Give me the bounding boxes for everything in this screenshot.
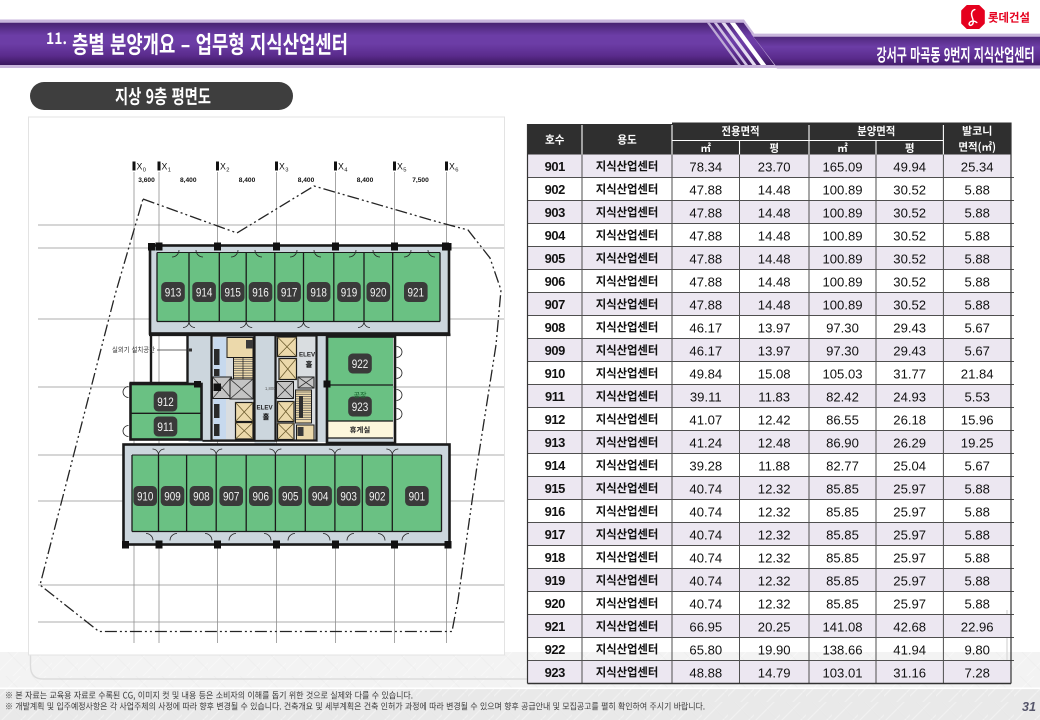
svg-text:919: 919 [341, 285, 358, 299]
svg-text:922: 922 [352, 357, 369, 371]
svg-text:X: X [220, 162, 226, 172]
svg-text:14.48: 14.48 [758, 183, 791, 198]
svg-text:85.85: 85.85 [826, 551, 859, 566]
svg-text:85.85: 85.85 [826, 597, 859, 612]
svg-text:907: 907 [223, 489, 240, 503]
svg-text:30.52: 30.52 [893, 298, 926, 313]
svg-text:912: 912 [545, 412, 566, 427]
svg-text:5.88: 5.88 [964, 482, 989, 497]
svg-text:903: 903 [340, 489, 357, 503]
svg-text:42.68: 42.68 [893, 620, 926, 635]
svg-text:47.88: 47.88 [689, 229, 722, 244]
svg-text:100.89: 100.89 [822, 229, 862, 244]
svg-text:0: 0 [143, 167, 146, 173]
svg-text:15.08: 15.08 [758, 367, 791, 382]
svg-text:X: X [449, 162, 455, 172]
svg-text:13.97: 13.97 [758, 344, 791, 359]
svg-text:920: 920 [545, 596, 566, 611]
svg-text:5.88: 5.88 [964, 528, 989, 543]
svg-text:14.48: 14.48 [758, 275, 791, 290]
svg-text:100.89: 100.89 [822, 252, 862, 267]
svg-text:921: 921 [545, 619, 566, 634]
svg-text:911: 911 [157, 420, 174, 434]
svg-text:916: 916 [545, 504, 566, 519]
svg-text:39.28: 39.28 [689, 459, 722, 474]
svg-text:8,400: 8,400 [239, 177, 256, 184]
svg-text:47.88: 47.88 [689, 275, 722, 290]
svg-text:5.88: 5.88 [964, 298, 989, 313]
svg-text:902: 902 [369, 489, 386, 503]
svg-text:85.85: 85.85 [826, 574, 859, 589]
svg-text:47.88: 47.88 [689, 183, 722, 198]
svg-text:19.90: 19.90 [758, 643, 791, 658]
svg-text:905: 905 [545, 251, 566, 266]
svg-text:97.30: 97.30 [826, 321, 859, 336]
svg-text:5.88: 5.88 [964, 229, 989, 244]
svg-text:49.94: 49.94 [893, 160, 926, 175]
svg-text:913: 913 [545, 435, 566, 450]
svg-text:3: 3 [285, 167, 288, 173]
svg-text:X: X [397, 162, 403, 172]
svg-text:25.97: 25.97 [893, 551, 926, 566]
svg-text:14.48: 14.48 [758, 206, 791, 221]
svg-text:22.96: 22.96 [961, 620, 994, 635]
svg-text:100.89: 100.89 [822, 275, 862, 290]
svg-text:40.74: 40.74 [689, 597, 722, 612]
svg-text:14.48: 14.48 [758, 298, 791, 313]
svg-text:12.32: 12.32 [758, 505, 791, 520]
svg-text:41.07: 41.07 [689, 413, 722, 428]
svg-text:25.97: 25.97 [893, 574, 926, 589]
svg-text:909: 909 [545, 343, 566, 358]
svg-text:5.88: 5.88 [964, 206, 989, 221]
svg-text:20.25: 20.25 [758, 620, 791, 635]
svg-text:912: 912 [157, 395, 174, 409]
svg-text:923: 923 [352, 400, 369, 414]
svg-text:916: 916 [252, 285, 269, 299]
svg-text:24.93: 24.93 [893, 390, 926, 405]
svg-text:15.96: 15.96 [961, 413, 994, 428]
svg-text:5.88: 5.88 [964, 183, 989, 198]
svg-text:85.85: 85.85 [826, 505, 859, 520]
svg-text:41.24: 41.24 [689, 436, 722, 451]
svg-text:46.17: 46.17 [689, 321, 722, 336]
svg-text:40.74: 40.74 [689, 482, 722, 497]
svg-text:29.43: 29.43 [893, 344, 926, 359]
svg-text:910: 910 [545, 366, 566, 381]
svg-text:5.88: 5.88 [964, 275, 989, 290]
svg-text:30.52: 30.52 [893, 252, 926, 267]
svg-text:12.42: 12.42 [758, 413, 791, 428]
svg-text:909: 909 [164, 489, 181, 503]
svg-text:48.88: 48.88 [689, 666, 722, 681]
svg-text:30.52: 30.52 [893, 206, 926, 221]
svg-text:1: 1 [168, 167, 171, 173]
svg-text:85.85: 85.85 [826, 482, 859, 497]
svg-text:5.53: 5.53 [964, 390, 989, 405]
svg-text:914: 914 [545, 458, 567, 473]
svg-text:12.32: 12.32 [758, 528, 791, 543]
svg-text:47.88: 47.88 [689, 298, 722, 313]
svg-text:31.77: 31.77 [893, 367, 926, 382]
svg-text:915: 915 [224, 285, 241, 299]
svg-text:25.97: 25.97 [893, 482, 926, 497]
svg-text:8,400: 8,400 [180, 177, 197, 184]
svg-text:901: 901 [545, 159, 566, 174]
svg-text:66.95: 66.95 [689, 620, 722, 635]
svg-text:103.01: 103.01 [822, 666, 862, 681]
svg-text:901: 901 [409, 489, 426, 503]
svg-text:8,400: 8,400 [298, 177, 315, 184]
svg-text:906: 906 [545, 274, 566, 289]
svg-text:904: 904 [312, 489, 329, 503]
svg-text:5: 5 [403, 167, 406, 173]
svg-text:12.32: 12.32 [758, 551, 791, 566]
svg-text:7,500: 7,500 [412, 177, 429, 184]
svg-text:12.32: 12.32 [758, 597, 791, 612]
svg-text:919: 919 [545, 573, 566, 588]
svg-text:917: 917 [545, 527, 566, 542]
svg-text:12.32: 12.32 [758, 482, 791, 497]
svg-text:910: 910 [137, 489, 154, 503]
svg-text:3,600: 3,600 [138, 177, 155, 184]
svg-text:X: X [338, 162, 344, 172]
svg-text:65.80: 65.80 [689, 643, 722, 658]
svg-text:917: 917 [281, 285, 298, 299]
svg-text:100.89: 100.89 [822, 206, 862, 221]
svg-text:9.80: 9.80 [964, 643, 989, 658]
svg-text:23.70: 23.70 [758, 160, 791, 175]
svg-text:X: X [162, 162, 168, 172]
svg-text:141.08: 141.08 [822, 620, 862, 635]
svg-text:2: 2 [226, 167, 229, 173]
svg-text:25.97: 25.97 [893, 597, 926, 612]
svg-text:5.88: 5.88 [964, 574, 989, 589]
svg-text:25.34: 25.34 [961, 160, 994, 175]
svg-text:914: 914 [196, 285, 213, 299]
svg-text:165.09: 165.09 [822, 160, 862, 175]
svg-text:902: 902 [545, 182, 566, 197]
svg-text:5.88: 5.88 [964, 597, 989, 612]
svg-text:904: 904 [545, 228, 567, 243]
svg-text:31.16: 31.16 [893, 666, 926, 681]
svg-text:906: 906 [253, 489, 270, 503]
svg-text:100.89: 100.89 [822, 183, 862, 198]
svg-text:12.48: 12.48 [758, 436, 791, 451]
svg-text:903: 903 [545, 205, 566, 220]
svg-text:47.88: 47.88 [689, 252, 722, 267]
svg-text:14.48: 14.48 [758, 229, 791, 244]
svg-text:7.28: 7.28 [964, 666, 989, 681]
svg-text:ELEV: ELEV [299, 352, 316, 359]
svg-text:X: X [279, 162, 285, 172]
svg-text:923: 923 [545, 665, 566, 680]
svg-text:49.84: 49.84 [689, 367, 722, 382]
svg-text:5.67: 5.67 [964, 459, 989, 474]
svg-text:905: 905 [282, 489, 299, 503]
svg-text:908: 908 [545, 320, 566, 335]
svg-text:40.74: 40.74 [689, 574, 722, 589]
svg-text:913: 913 [165, 285, 182, 299]
svg-text:29.43: 29.43 [893, 321, 926, 336]
svg-text:97.30: 97.30 [826, 344, 859, 359]
svg-text:85.85: 85.85 [826, 528, 859, 543]
svg-text:6: 6 [455, 167, 458, 173]
svg-text:8,400: 8,400 [357, 177, 374, 184]
svg-text:13.97: 13.97 [758, 321, 791, 336]
svg-text:40.74: 40.74 [689, 551, 722, 566]
svg-text:25.04: 25.04 [893, 459, 926, 474]
svg-text:39.11: 39.11 [690, 390, 722, 405]
svg-text:30.52: 30.52 [893, 229, 926, 244]
svg-text:25.97: 25.97 [893, 505, 926, 520]
svg-text:26.18: 26.18 [893, 413, 926, 428]
svg-text:30.52: 30.52 [893, 275, 926, 290]
svg-text:14.79: 14.79 [758, 666, 791, 681]
svg-text:41.94: 41.94 [893, 643, 926, 658]
svg-text:ELEV: ELEV [257, 405, 274, 412]
svg-text:5.88: 5.88 [964, 551, 989, 566]
svg-text:907: 907 [545, 297, 566, 312]
svg-text:921: 921 [408, 285, 425, 299]
svg-text:11.88: 11.88 [758, 459, 790, 474]
svg-text:922: 922 [545, 642, 566, 657]
svg-text:920: 920 [370, 285, 387, 299]
svg-text:47.88: 47.88 [689, 206, 722, 221]
svg-text:14.48: 14.48 [758, 252, 791, 267]
svg-text:19.25: 19.25 [961, 436, 994, 451]
svg-text:26.29: 26.29 [893, 436, 926, 451]
svg-text:78.34: 78.34 [689, 160, 722, 175]
svg-text:11.83: 11.83 [758, 390, 790, 405]
svg-text:82.42: 82.42 [826, 390, 859, 405]
svg-text:918: 918 [310, 285, 327, 299]
svg-text:915: 915 [545, 481, 566, 496]
svg-text:40.74: 40.74 [689, 528, 722, 543]
svg-text:5.67: 5.67 [964, 321, 989, 336]
svg-text:911: 911 [545, 389, 565, 404]
svg-text:25.97: 25.97 [893, 528, 926, 543]
svg-text:918: 918 [545, 550, 566, 565]
svg-text:46.17: 46.17 [689, 344, 722, 359]
svg-text:40.74: 40.74 [689, 505, 722, 520]
svg-text:105.03: 105.03 [822, 367, 862, 382]
svg-text:86.90: 86.90 [826, 436, 859, 451]
svg-text:31: 31 [1022, 700, 1036, 714]
svg-text:21.84: 21.84 [961, 367, 994, 382]
svg-text:12.32: 12.32 [758, 574, 791, 589]
svg-text:30.52: 30.52 [893, 183, 926, 198]
svg-text:X: X [137, 162, 143, 172]
svg-text:5.67: 5.67 [964, 344, 989, 359]
svg-text:82.77: 82.77 [826, 459, 859, 474]
svg-text:86.55: 86.55 [826, 413, 859, 428]
svg-text:5.88: 5.88 [964, 252, 989, 267]
svg-text:100.89: 100.89 [822, 298, 862, 313]
svg-text:5.88: 5.88 [964, 505, 989, 520]
svg-text:138.66: 138.66 [822, 643, 862, 658]
svg-text:908: 908 [193, 489, 210, 503]
